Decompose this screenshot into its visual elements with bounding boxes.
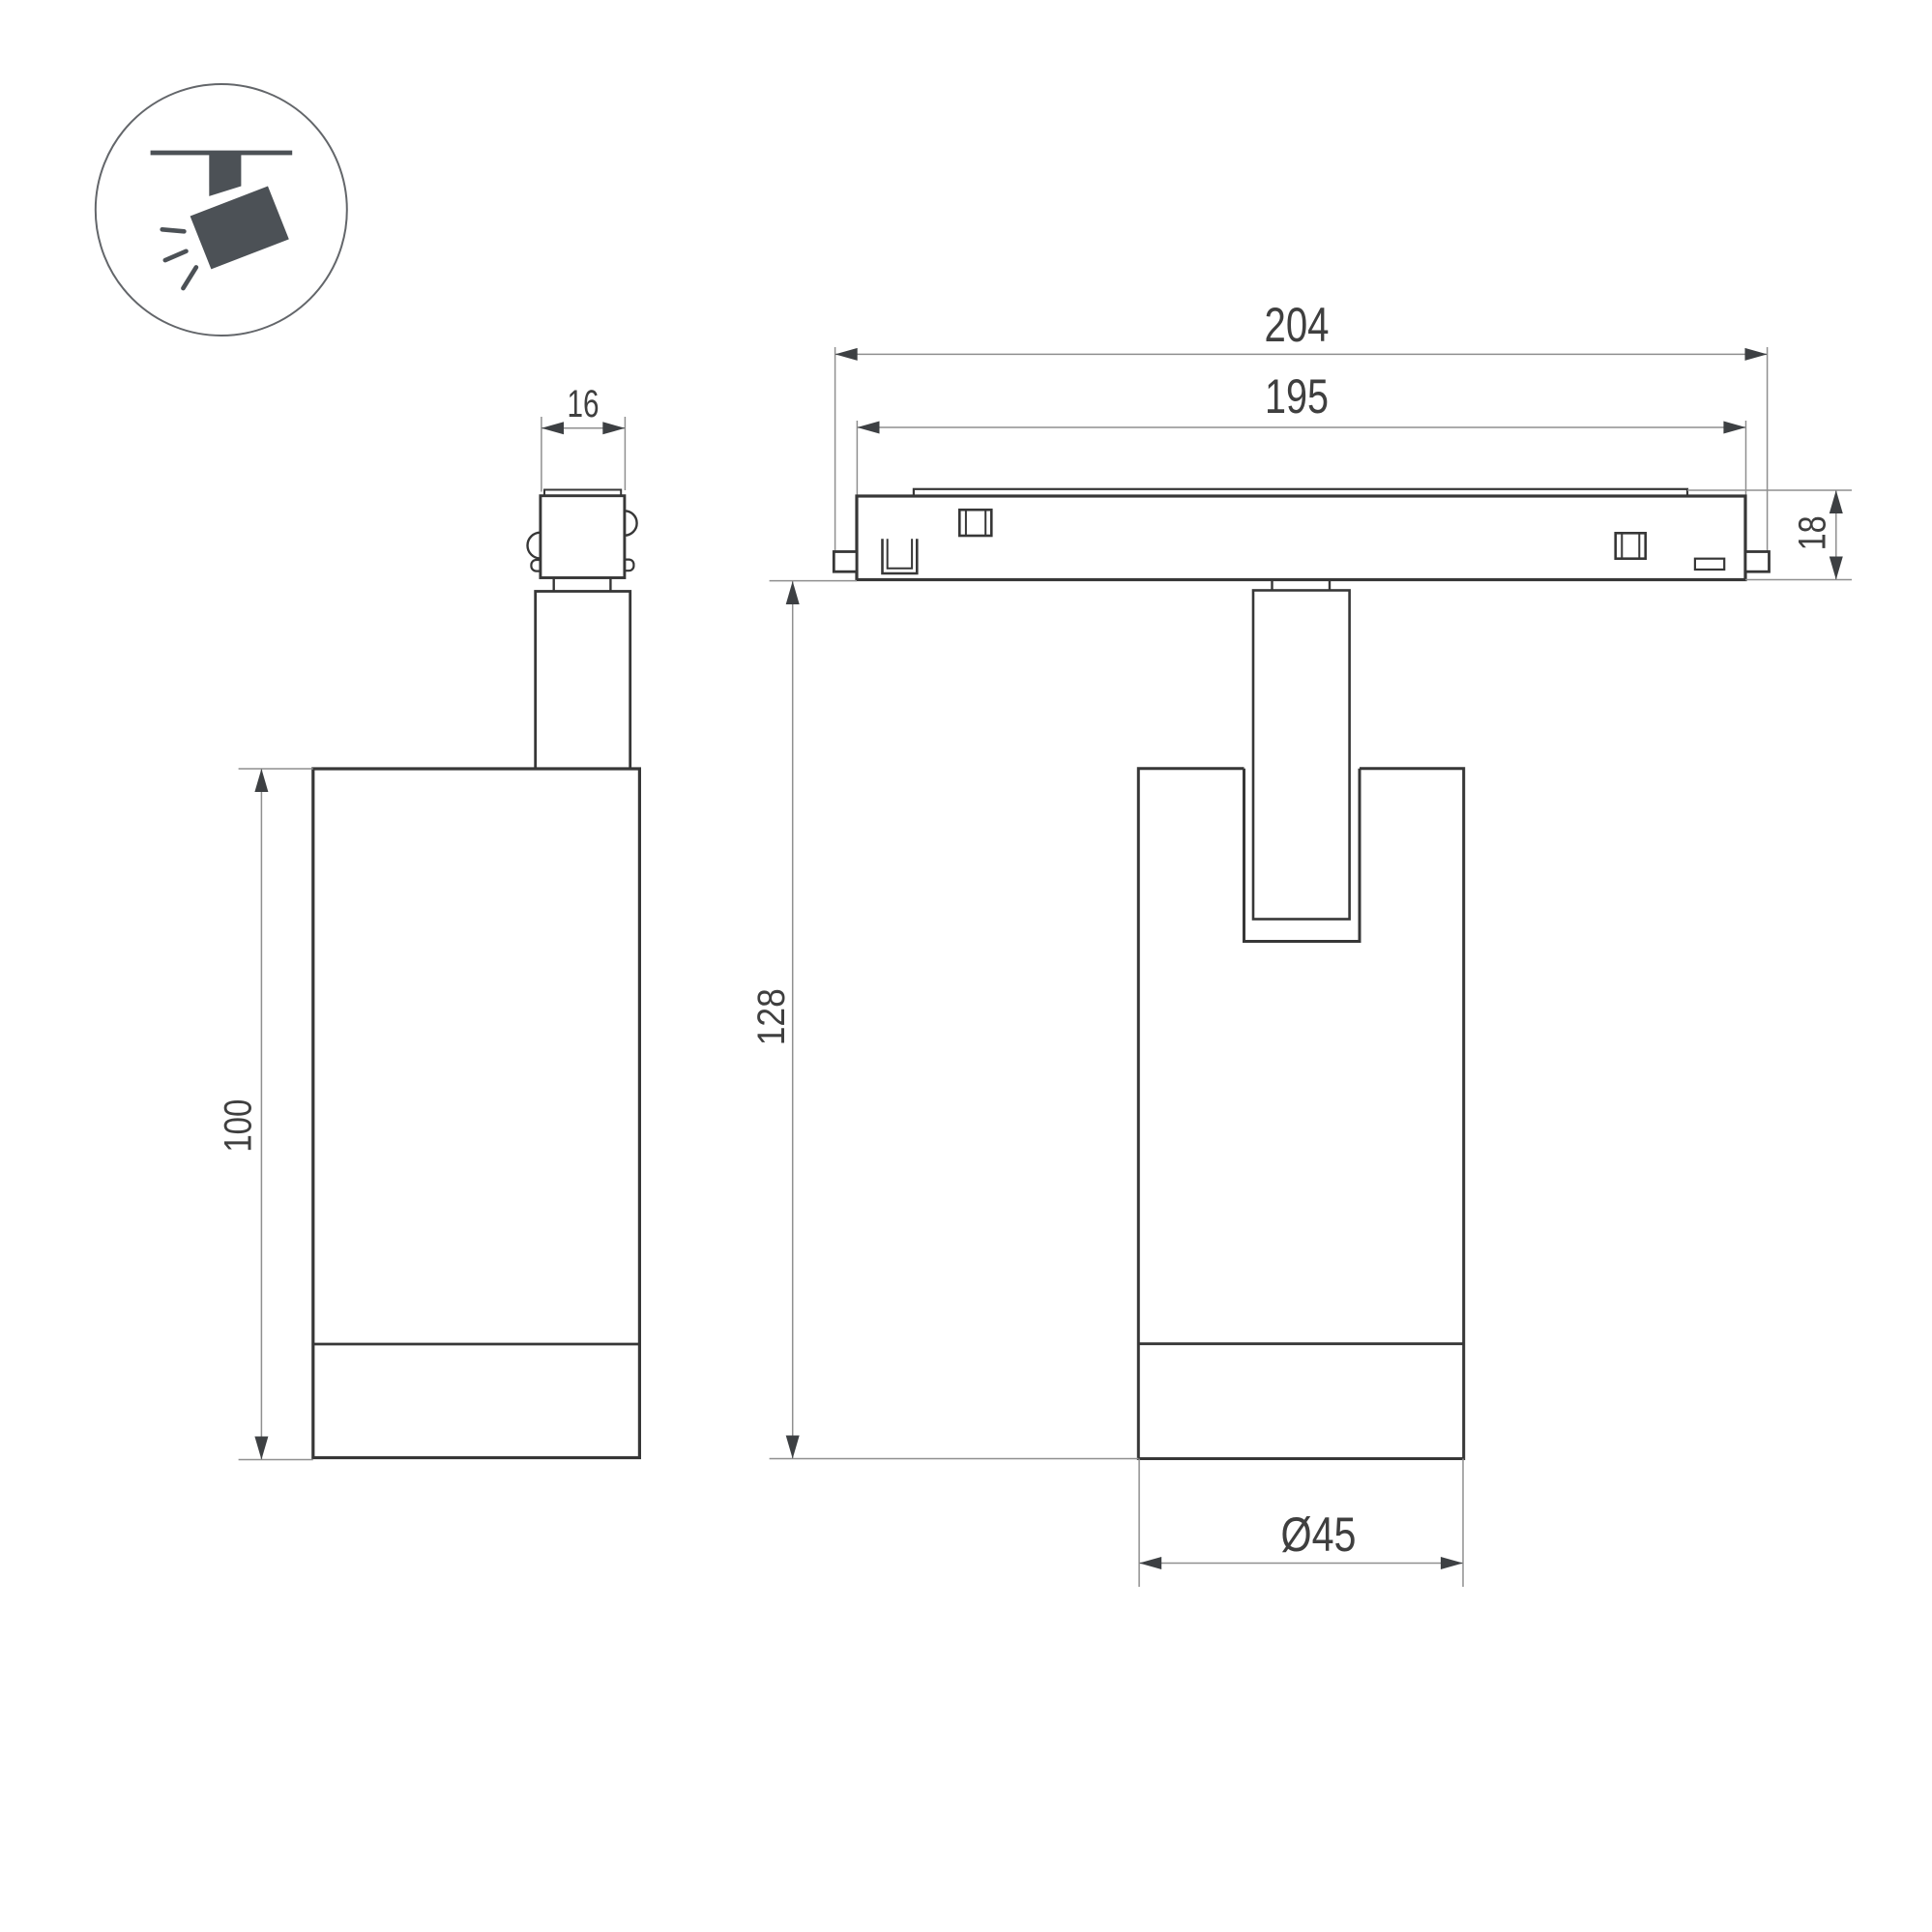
svg-text:18: 18 — [1791, 515, 1833, 550]
svg-text:195: 195 — [1265, 369, 1329, 424]
svg-text:100: 100 — [217, 1099, 259, 1153]
svg-text:Ø45: Ø45 — [1281, 1508, 1357, 1562]
svg-text:16: 16 — [568, 383, 600, 425]
svg-text:204: 204 — [1265, 298, 1330, 352]
svg-text:128: 128 — [750, 988, 793, 1045]
